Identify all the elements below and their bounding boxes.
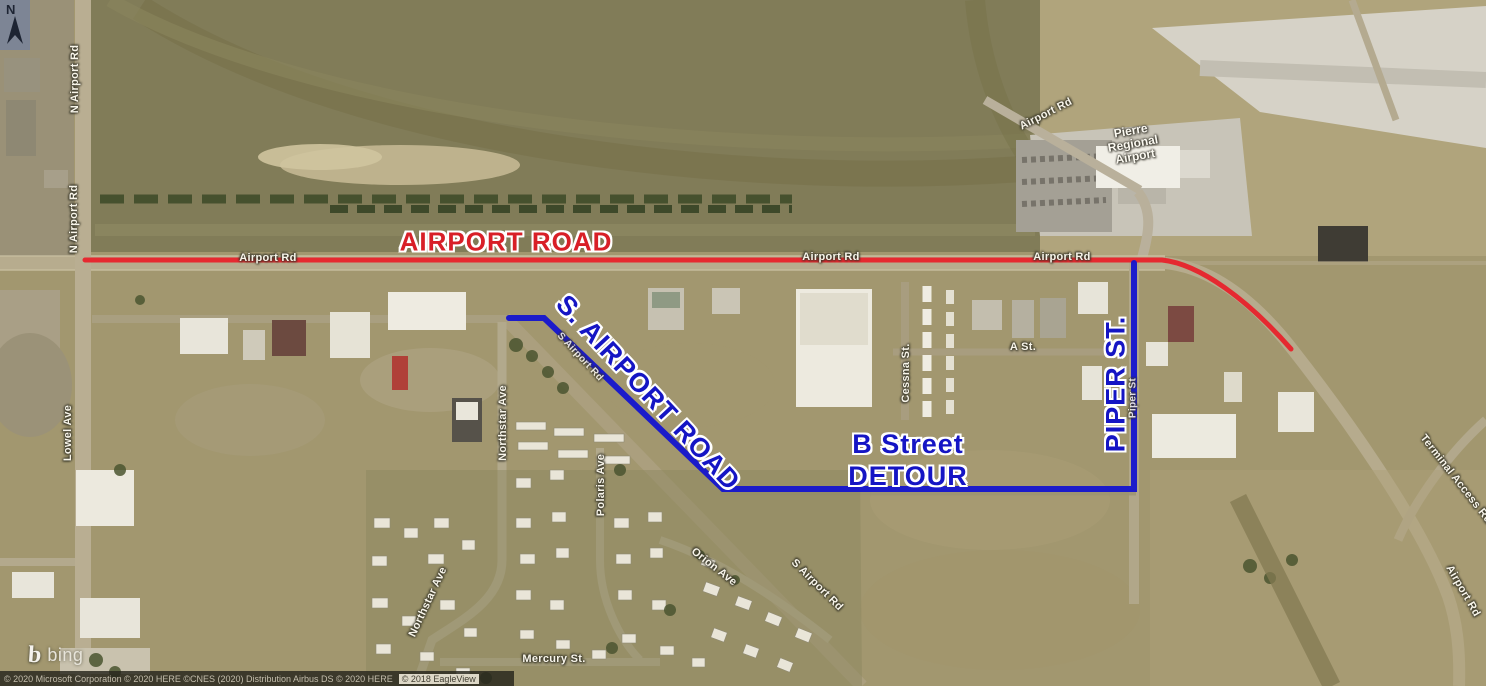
imagery-provider-badge: © 2018 EagleView xyxy=(399,674,479,684)
detour-route-line-blue xyxy=(509,263,1134,489)
label-b-street-detour: B Street DETOUR xyxy=(848,428,968,492)
map-canvas: AIRPORT ROAD S. AIRPORT ROAD B Street DE… xyxy=(0,0,1486,686)
label-b-street-line2: DETOUR xyxy=(848,460,968,492)
label-piper-st-detour: PIPER ST. xyxy=(1101,316,1132,453)
label-airport-road-closed: AIRPORT ROAD xyxy=(400,227,613,258)
label-b-street-line1: B Street xyxy=(848,428,968,460)
copyright-bar: © 2020 Microsoft Corporation © 2020 HERE… xyxy=(0,671,514,686)
copyright-text: © 2020 Microsoft Corporation © 2020 HERE… xyxy=(4,674,393,684)
north-label: N xyxy=(6,2,15,17)
north-arrow: N xyxy=(0,0,30,55)
bing-logo-icon: b xyxy=(27,644,42,666)
bing-wordmark: bing xyxy=(47,645,83,666)
route-overlay xyxy=(0,0,1486,686)
bing-logo[interactable]: b bing xyxy=(28,644,83,666)
